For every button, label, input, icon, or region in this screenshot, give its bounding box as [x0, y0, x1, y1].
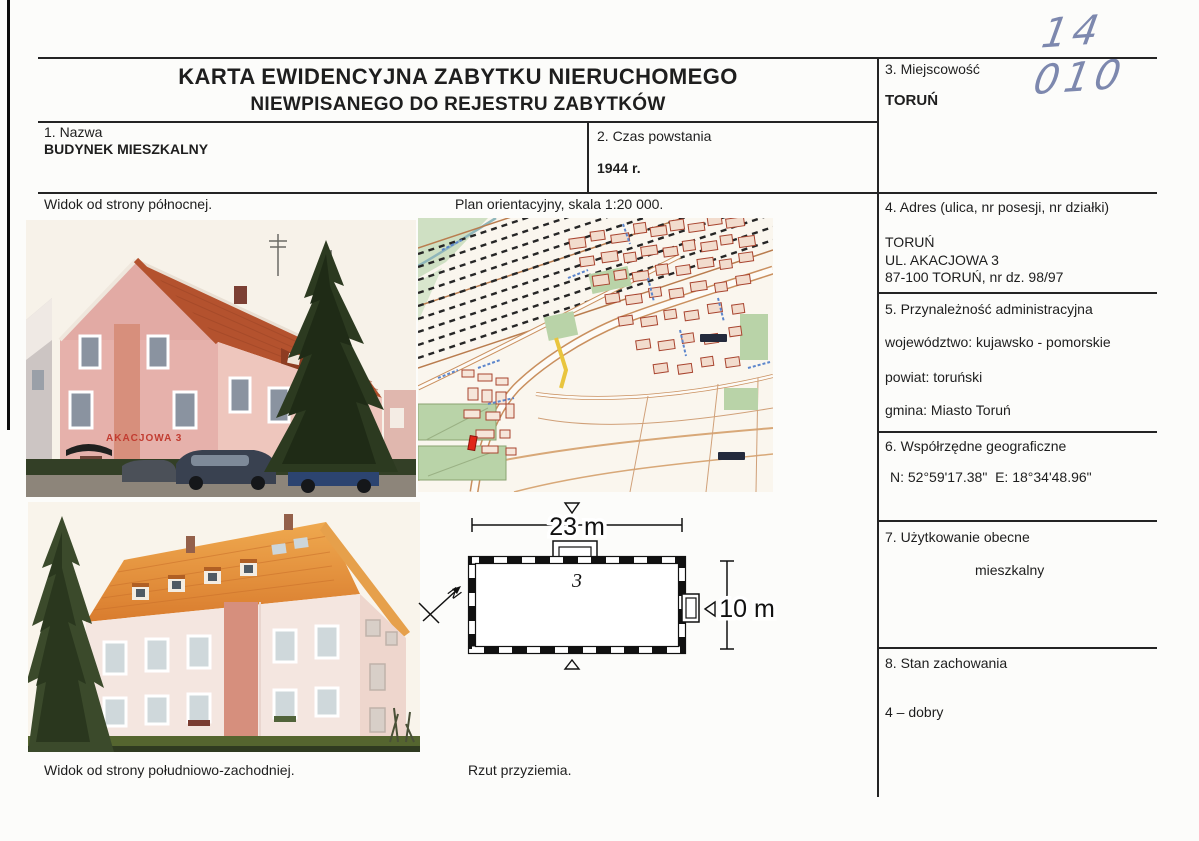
site-plan-map: [418, 218, 773, 492]
facade-stripe: [224, 602, 258, 740]
caption-photo-southwest: Widok od strony południowo-zachodniej.: [44, 762, 295, 779]
map-label-badge: [700, 334, 727, 342]
chimney: [284, 514, 293, 530]
rule-top: [38, 57, 1157, 59]
field2-label: 2. Czas powstania: [597, 128, 711, 145]
photo-north-view: AKACJOWA 3: [26, 220, 416, 497]
rule-sep-5-6: [878, 431, 1157, 433]
unit-number-label: 3: [571, 570, 582, 592]
building-sign: AKACJOWA 3: [106, 433, 182, 444]
field7-label: 7. Użytkowanie obecne: [885, 529, 1030, 546]
caption-ground-plan: Rzut przyziemia.: [468, 762, 571, 779]
field8-label: 8. Stan zachowania: [885, 655, 1007, 672]
rule-v-right-column: [877, 57, 879, 797]
field4-line2: UL. AKACJOWA 3: [885, 252, 1063, 270]
scan-edge-artifact: [7, 0, 10, 430]
flower-box: [274, 716, 296, 722]
field3-value: TORUŃ: [885, 92, 938, 110]
north-arrow-icon: N: [419, 583, 464, 623]
height-dimension: 10 m: [705, 561, 775, 649]
field4-line3: 87-100 TORUŃ, nr dz. 98/97: [885, 269, 1063, 287]
marker-triangle-down-icon: [565, 503, 579, 513]
map-label-badge: [718, 452, 745, 460]
rule-sep-6-7: [878, 520, 1157, 522]
card-header: KARTA EWIDENCYJNA ZABYTKU NIERUCHOMEGO N…: [38, 64, 878, 116]
field1-value: BUDYNEK MIESZKALNY: [44, 141, 208, 158]
facade-stripe: [114, 324, 140, 468]
field1-label: 1. Nazwa: [44, 124, 102, 141]
photo-southwest-view: [28, 502, 420, 752]
field5-voivodeship: województwo: kujawsko - pomorskie: [885, 334, 1111, 351]
field3-label: 3. Miejscowość: [885, 61, 980, 78]
field8-value: 4 – dobry: [885, 704, 943, 721]
card-title-line2: NIEWPISANEGO DO REJESTRU ZABYTKÓW: [38, 94, 878, 116]
neighbor-building-left: [26, 298, 52, 468]
ground-plan-drawing: 23 m 3 10 m N: [415, 497, 795, 697]
field2-value: 1944 r.: [597, 160, 641, 177]
rule-v-name-time: [587, 121, 589, 194]
field6-value: N: 52°59'17.38" E: 18°34'48.96": [890, 469, 1092, 486]
card-title-line1: KARTA EWIDENCYJNA ZABYTKU NIERUCHOMEGO: [38, 64, 878, 90]
flower-box: [188, 720, 210, 726]
chimney: [234, 286, 247, 304]
field4-label: 4. Adres (ulica, nr posesji, nr działki): [885, 199, 1109, 216]
field5-county: powiat: toruński: [885, 369, 982, 386]
field5-commune: gmina: Miasto Toruń: [885, 402, 1011, 419]
field4-line1: TORUŃ: [885, 234, 1063, 252]
width-dimension: 23 m: [472, 513, 682, 541]
caption-photo-north: Widok od strony północnej.: [44, 196, 212, 213]
rule-sep-4-5: [878, 292, 1157, 294]
width-dimension-label: 23 m: [549, 513, 605, 541]
rule-sep-7-8: [878, 647, 1157, 649]
field4-value: TORUŃ UL. AKACJOWA 3 87-100 TORUŃ, nr dz…: [885, 234, 1063, 287]
neighbor-window: [390, 408, 404, 428]
north-letter: N: [444, 583, 464, 603]
rule-title-bottom: [38, 121, 878, 123]
field6-label: 6. Współrzędne geograficzne: [885, 438, 1066, 455]
chimney: [186, 536, 195, 553]
marker-triangle-up-icon: [565, 660, 579, 669]
field7-value: mieszkalny: [975, 562, 1044, 579]
caption-site-plan: Plan orientacyjny, skala 1:20 000.: [455, 196, 663, 213]
height-dimension-label: 10 m: [719, 595, 775, 623]
marker-triangle-left-icon: [705, 602, 715, 616]
handwritten-inventory-number: 14 010: [1030, 0, 1199, 104]
rule-row2-bottom: [38, 192, 1157, 194]
field5-label: 5. Przynależność administracyjna: [885, 301, 1093, 318]
right-porch: [682, 594, 699, 622]
